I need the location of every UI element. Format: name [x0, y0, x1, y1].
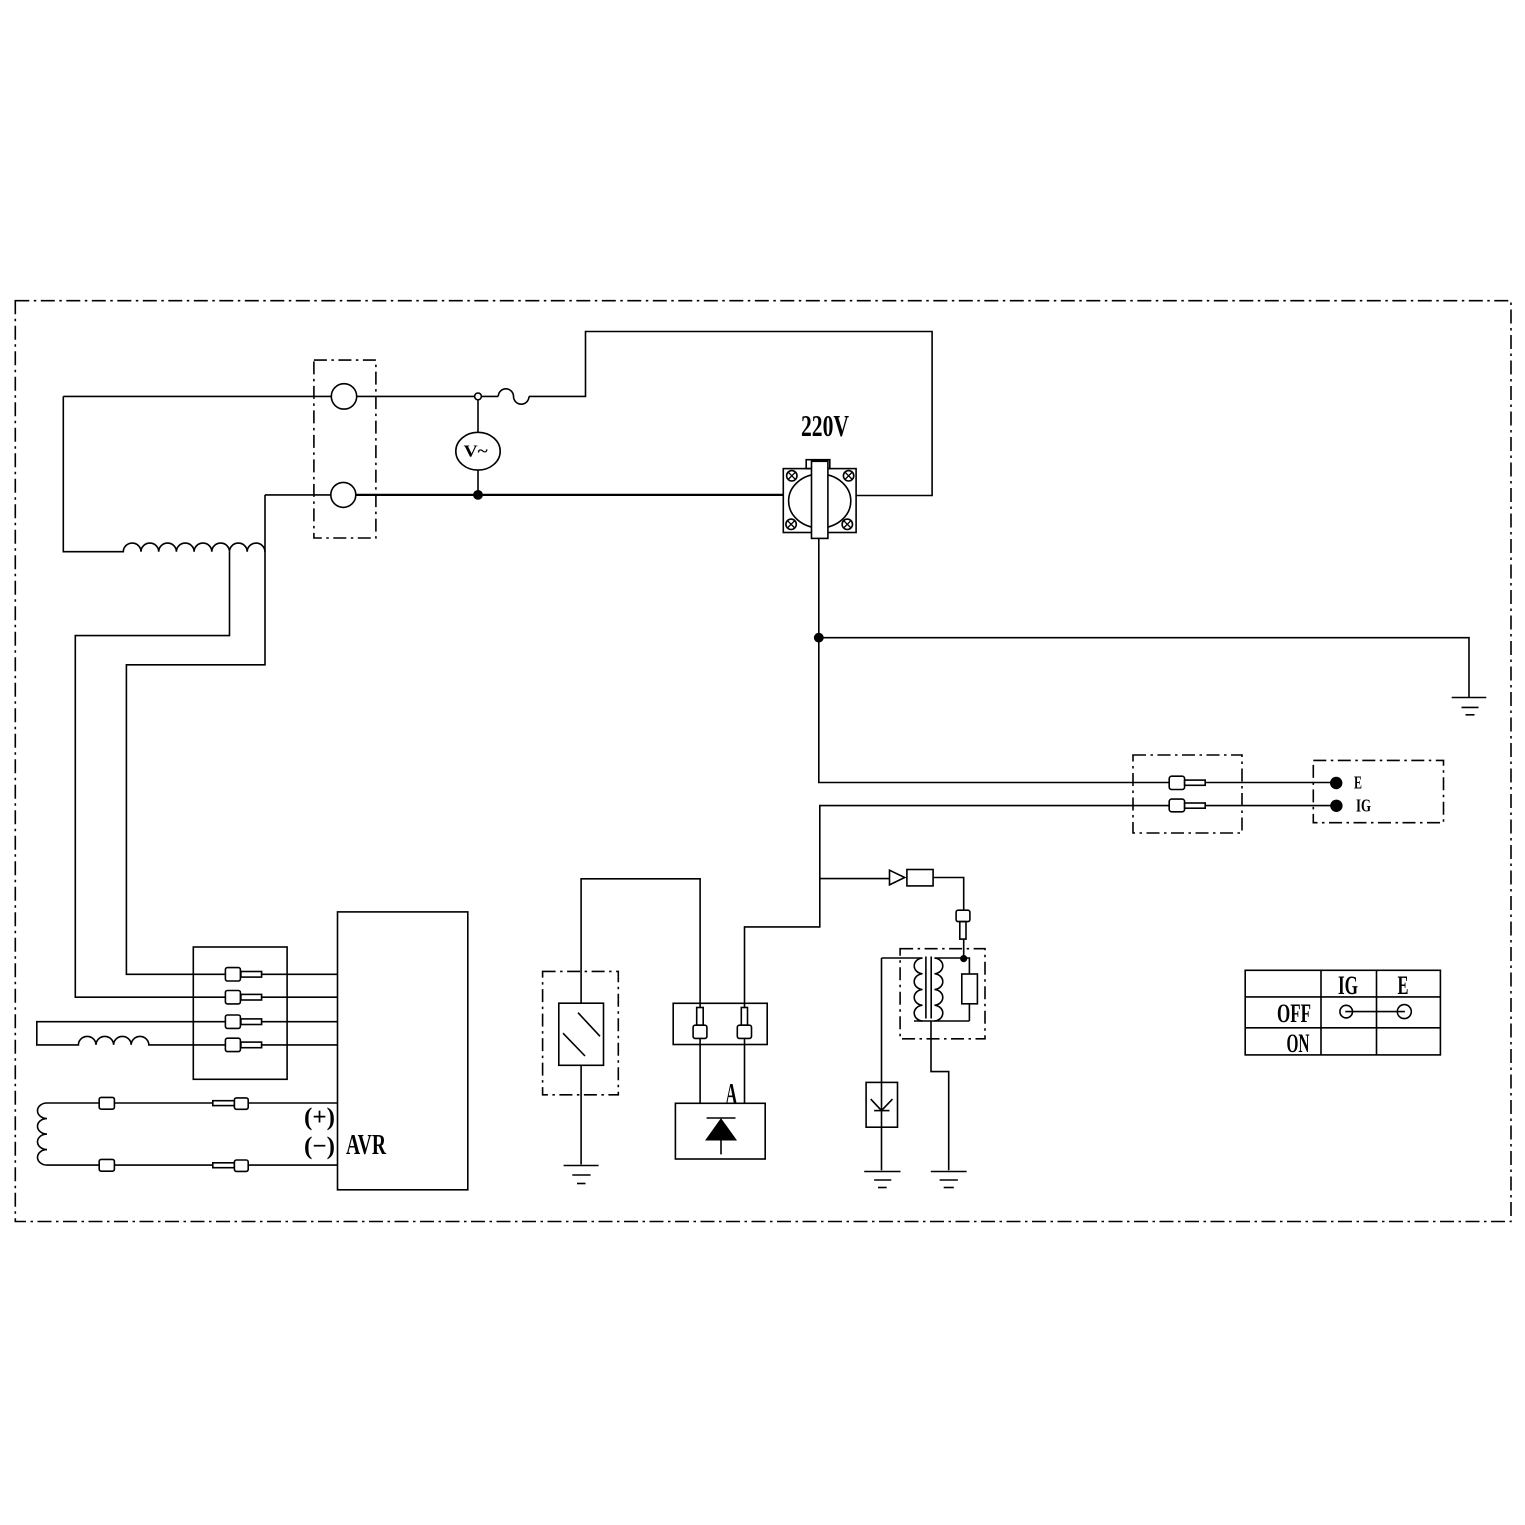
svg-text:IG: IG	[1338, 971, 1358, 1000]
svg-text:220V: 220V	[801, 408, 849, 443]
svg-text:V~: V~	[464, 442, 488, 461]
svg-text:IG: IG	[1356, 796, 1371, 816]
svg-text:E: E	[1398, 971, 1409, 1000]
svg-text:(−): (−)	[304, 1133, 335, 1160]
svg-text:OFF: OFF	[1277, 999, 1311, 1028]
svg-text:AVR: AVR	[346, 1130, 387, 1161]
svg-text:A: A	[725, 1076, 737, 1111]
svg-text:E: E	[1354, 773, 1362, 793]
svg-text:ON: ON	[1287, 1029, 1310, 1058]
svg-text:(+): (+)	[304, 1104, 335, 1131]
